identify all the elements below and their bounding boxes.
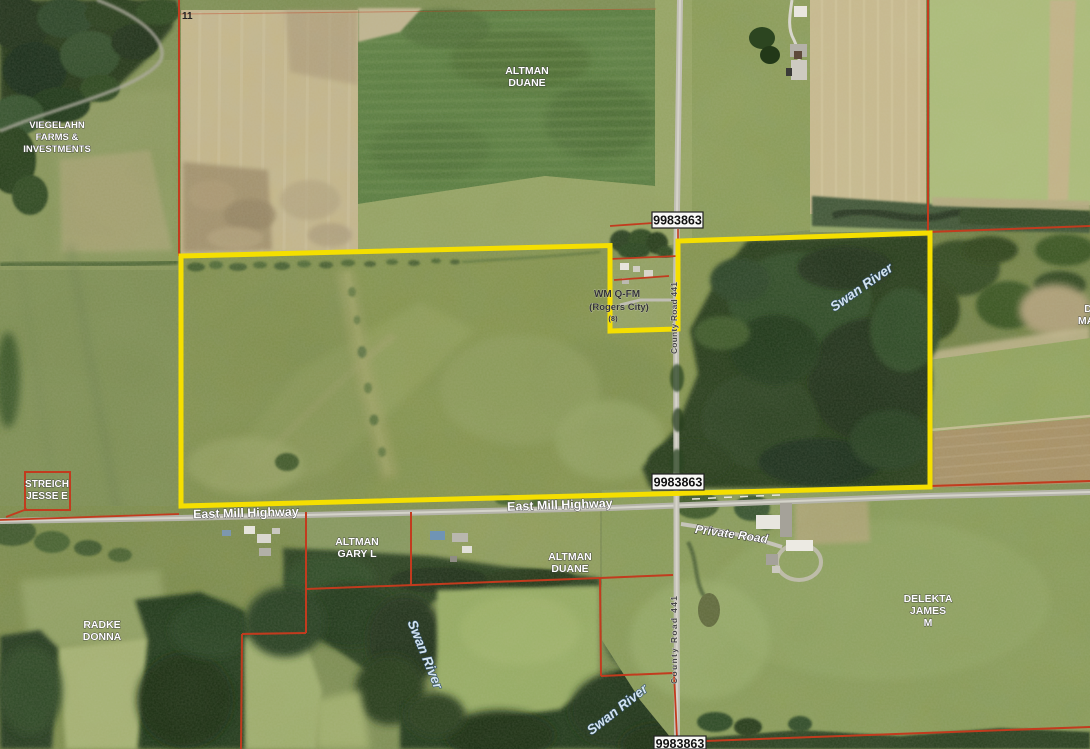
svg-text:DELEKTA: DELEKTA [904,593,953,605]
svg-text:ALTMAN: ALTMAN [505,65,549,77]
svg-text:9983863: 9983863 [654,476,703,490]
svg-text:East Mill Highway: East Mill Highway [193,505,299,522]
svg-text:M: M [924,617,933,629]
svg-text:MA: MA [1078,315,1090,327]
svg-text:RADKE: RADKE [83,619,120,631]
svg-text:GARY L: GARY L [337,548,377,560]
svg-text:9983863: 9983863 [653,214,702,228]
svg-text:DUANE: DUANE [551,563,588,575]
svg-text:DONNA: DONNA [83,631,122,643]
svg-text:JAMES: JAMES [910,605,946,617]
svg-text:WM Q-FM: WM Q-FM [594,289,640,300]
svg-text:JESSE E: JESSE E [26,491,68,502]
svg-text:(8): (8) [608,314,618,323]
svg-text:County Road 441: County Road 441 [669,596,679,684]
svg-text:ALTMAN: ALTMAN [335,536,379,548]
svg-text:VIEGELAHN: VIEGELAHN [29,120,85,131]
svg-text:STREICH: STREICH [25,479,69,490]
svg-text:(Rogers City): (Rogers City) [589,302,649,313]
svg-text:INVESTMENTS: INVESTMENTS [23,144,91,155]
svg-text:9983863: 9983863 [656,737,705,749]
svg-text:FARMS &: FARMS & [36,132,79,143]
svg-text:ALTMAN: ALTMAN [548,551,592,563]
svg-text:11: 11 [182,11,193,22]
svg-text:DUANE: DUANE [508,77,545,89]
svg-text:County Road 441: County Road 441 [669,282,679,354]
svg-text:D: D [1084,303,1090,315]
